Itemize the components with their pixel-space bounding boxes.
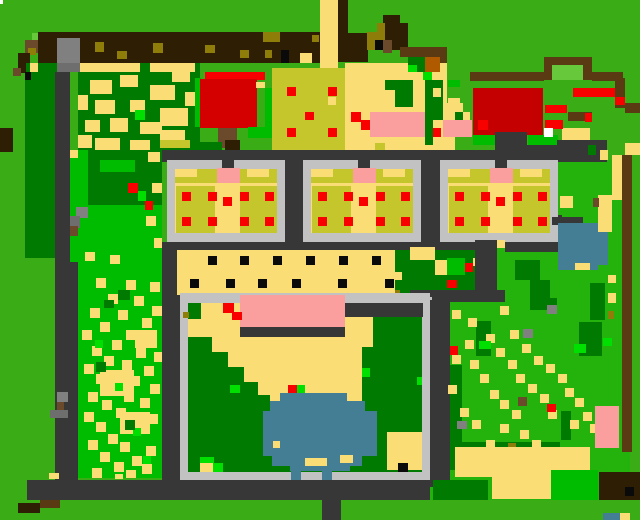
village-map-canvas[interactable] xyxy=(0,0,640,520)
pixel-village-map xyxy=(0,0,640,520)
